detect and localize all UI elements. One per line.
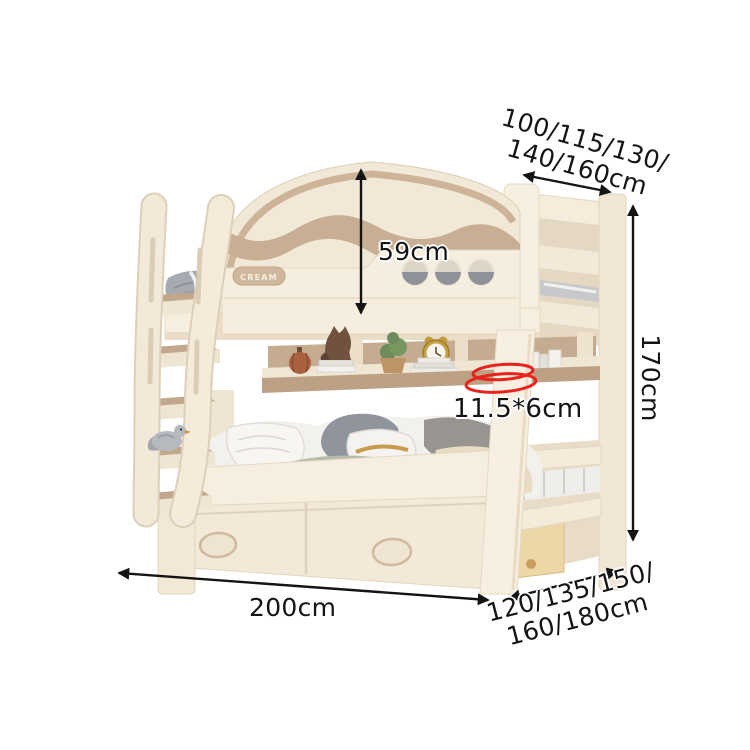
headboard: CREAM (214, 162, 520, 338)
underbed-drawers (158, 450, 500, 594)
bed-length-label: 200cm (249, 594, 336, 622)
brand-badge: CREAM (233, 267, 285, 285)
headboard-height-label: 59cm (378, 238, 449, 266)
overall-height-label: 170cm (636, 334, 664, 421)
brand-badge-text: CREAM (240, 273, 278, 282)
post-size-label: 11.5*6cm (453, 395, 582, 424)
product-dimension-image: CREAM (0, 0, 750, 750)
rear-right-post (599, 194, 626, 590)
